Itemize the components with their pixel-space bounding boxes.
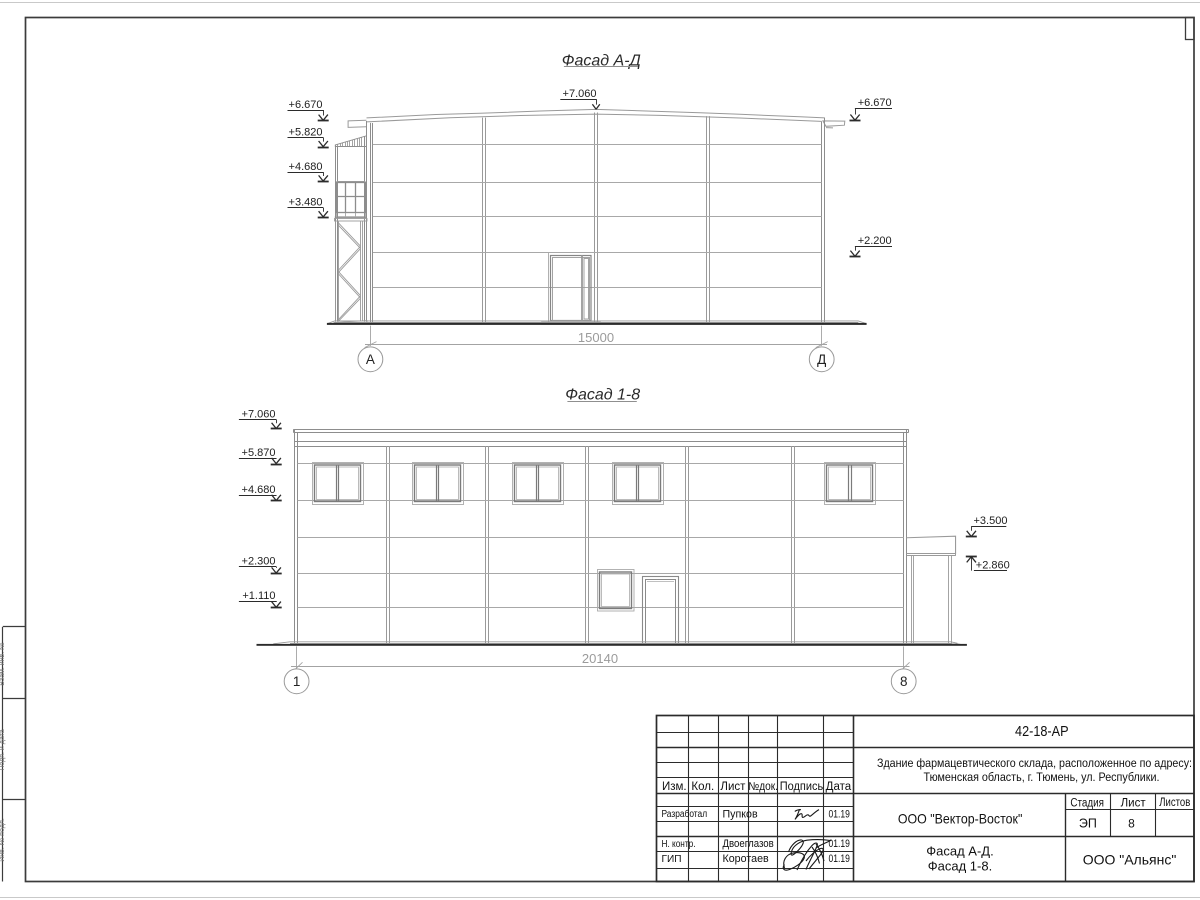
svg-text:+2.860: +2.860: [976, 560, 1010, 572]
svg-text:Инв. № подл.: Инв. № подл.: [0, 818, 6, 862]
svg-text:Дата: Дата: [826, 781, 852, 793]
svg-text:+2.300: +2.300: [242, 556, 276, 568]
svg-text:8: 8: [900, 674, 908, 689]
svg-text:1: 1: [293, 674, 301, 689]
svg-text:Изм.: Изм.: [662, 781, 687, 793]
svg-text:Лист: Лист: [1121, 798, 1147, 810]
svg-text:Фасад А-Д.: Фасад А-Д.: [926, 844, 993, 859]
svg-text:Листов: Листов: [1159, 797, 1190, 809]
svg-text:+2.200: +2.200: [858, 235, 892, 247]
svg-text:№док.: №док.: [748, 781, 778, 793]
svg-text:Стадия: Стадия: [1070, 798, 1104, 810]
svg-text:Подпись: Подпись: [780, 781, 823, 793]
svg-text:Фасад 1-8.: Фасад 1-8.: [928, 859, 992, 874]
svg-text:+7.060: +7.060: [563, 88, 597, 100]
svg-text:Кол.: Кол.: [691, 781, 714, 793]
svg-text:ГИП: ГИП: [662, 853, 682, 865]
svg-text:Коротаев: Коротаев: [723, 853, 769, 865]
svg-text:+3.480: +3.480: [289, 197, 323, 209]
svg-text:15000: 15000: [578, 330, 614, 345]
svg-text:+3.500: +3.500: [974, 515, 1008, 527]
svg-text:+5.820: +5.820: [289, 126, 323, 138]
svg-text:8: 8: [1128, 817, 1135, 831]
svg-text:Разработал: Разработал: [662, 808, 708, 820]
svg-text:ЭП: ЭП: [1079, 817, 1097, 831]
svg-text:42-18-АР: 42-18-АР: [1015, 724, 1069, 740]
svg-text:20140: 20140: [582, 651, 618, 666]
svg-text:+4.680: +4.680: [289, 161, 323, 173]
svg-text:01.19: 01.19: [829, 853, 850, 865]
svg-text:Фасад 1-8: Фасад 1-8: [565, 386, 640, 403]
svg-text:01.19: 01.19: [829, 808, 850, 820]
svg-text:+5.870: +5.870: [242, 447, 276, 459]
svg-text:01.19: 01.19: [829, 838, 850, 850]
svg-text:А: А: [366, 352, 375, 367]
svg-text:Тюменская область, г. Тюмень,: Тюменская область, г. Тюмень, ул. Респуб…: [924, 770, 1160, 784]
svg-text:Двоеглазов: Двоеглазов: [723, 838, 774, 850]
svg-text:Подп. и дата: Подп. и дата: [0, 729, 6, 770]
svg-text:ООО "Альянс": ООО "Альянс": [1083, 852, 1177, 868]
svg-text:ООО "Вектор-Восток": ООО "Вектор-Восток": [898, 810, 1023, 826]
svg-text:+6.670: +6.670: [289, 99, 323, 111]
svg-text:+1.110: +1.110: [242, 590, 275, 602]
svg-text:Д: Д: [817, 352, 826, 367]
svg-text:Взам. инв. №: Взам. инв. №: [0, 642, 6, 685]
svg-text:+7.060: +7.060: [242, 408, 276, 420]
svg-text:Лист: Лист: [720, 781, 746, 793]
svg-text:+4.680: +4.680: [242, 484, 276, 496]
svg-text:+6.670: +6.670: [858, 97, 892, 109]
svg-text:Пупков: Пупков: [723, 808, 758, 820]
svg-text:Н. контр.: Н. контр.: [662, 839, 696, 850]
svg-text:Здание фармацевтического склад: Здание фармацевтического склада, располо…: [877, 756, 1192, 770]
